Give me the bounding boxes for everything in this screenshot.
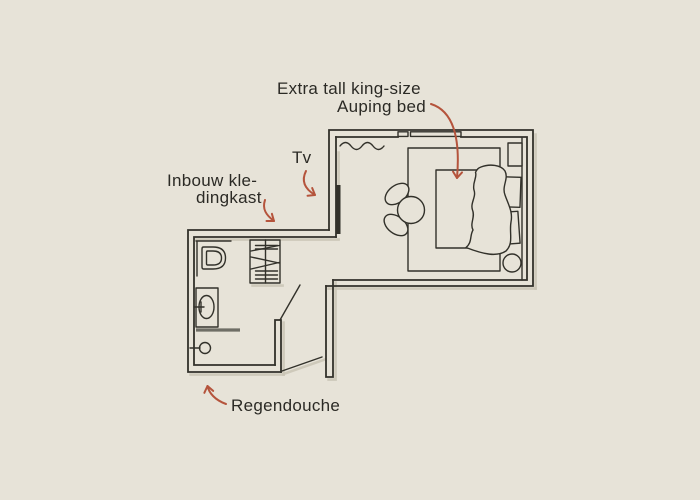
tv-arrow [304, 171, 315, 195]
side-table [503, 254, 521, 272]
wardrobe-label-line2: dingkast [196, 189, 262, 207]
shower-head-icon [190, 343, 211, 354]
washbasin-icon [194, 288, 218, 327]
nightstand [508, 143, 522, 166]
toilet-icon [196, 241, 231, 276]
armchair-seat [398, 197, 425, 224]
floorplan-page: Extra tall king-size Auping bed Tv Inbou… [0, 0, 700, 500]
tv-label: Tv [292, 149, 311, 167]
shower-arrow [208, 386, 227, 404]
window-pane-small [398, 132, 408, 137]
shower-label: Regendouche [231, 397, 340, 415]
corridor-wall [326, 280, 333, 377]
bathroom-fixtures [190, 240, 280, 354]
bed-arrow [431, 104, 458, 178]
floorplan-drawing [0, 0, 700, 500]
door-jamb [275, 320, 281, 372]
window-pane-large [411, 132, 462, 137]
tv-icon [337, 185, 341, 234]
wardrobe-icon [250, 240, 280, 283]
doors [280, 285, 322, 371]
armchair [380, 179, 424, 240]
bathroom-door-leaf [280, 285, 300, 320]
curtain-icon [340, 143, 384, 150]
entrance-door-leaf [282, 357, 322, 371]
bed-label-line2: Auping bed [337, 98, 426, 116]
wardrobe-arrow [264, 200, 274, 221]
bedroom-furniture [337, 138, 523, 280]
bed-label-line1: Extra tall king-size [277, 80, 421, 98]
